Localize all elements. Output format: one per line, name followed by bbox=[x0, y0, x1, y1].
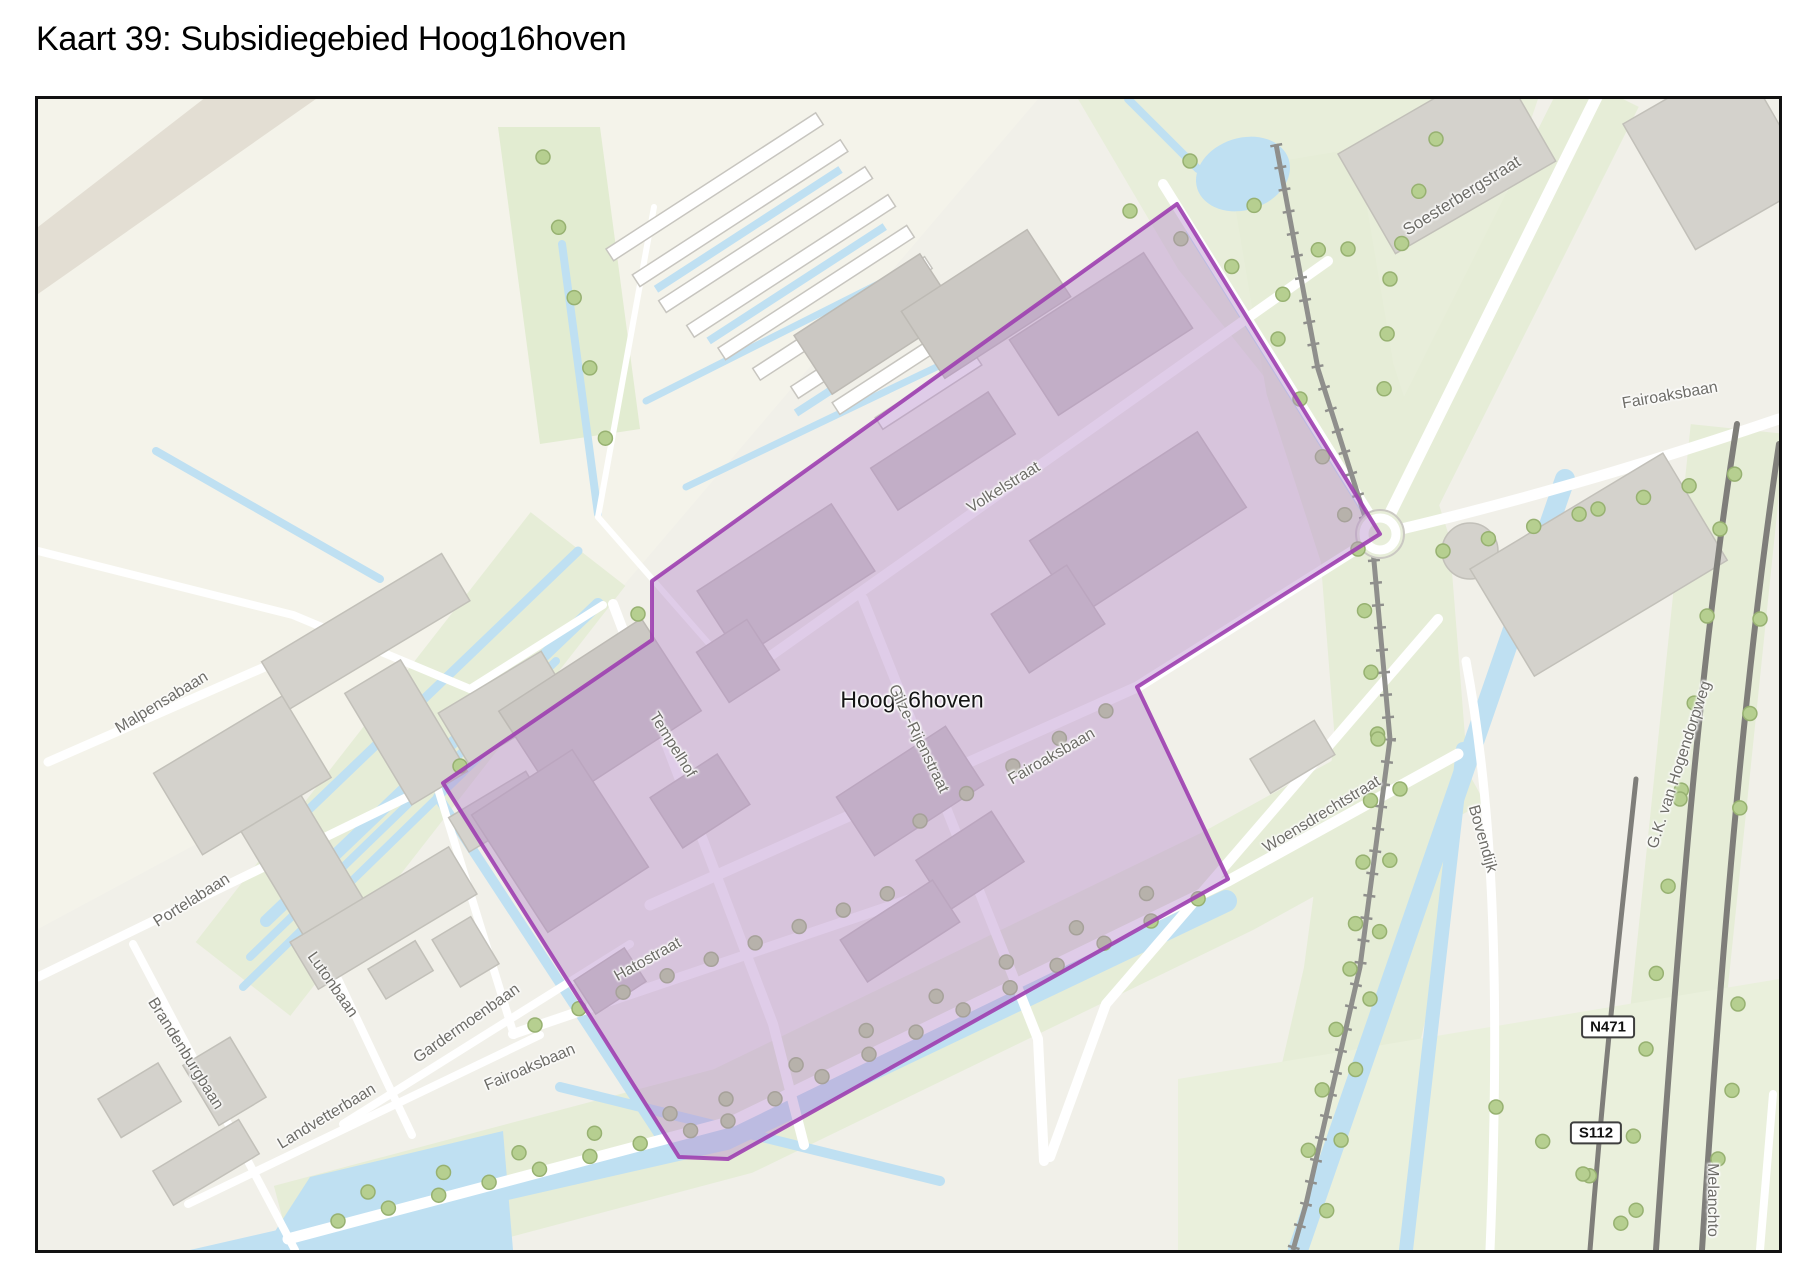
map-title: Kaart 39: Subsidiegebied Hoog16hoven bbox=[36, 20, 626, 59]
labels-layer: Hoog16hovenSoesterbergstraatFairoaksbaan… bbox=[38, 99, 1779, 1250]
street-label: Soesterbergstraat bbox=[1399, 152, 1524, 241]
street-label: Gardermoenbaan bbox=[410, 981, 523, 1068]
map-frame: Hoog16hovenSoesterbergstraatFairoaksbaan… bbox=[35, 96, 1782, 1253]
street-label: Bovendijk bbox=[1464, 803, 1500, 875]
road-shield: N471 bbox=[1581, 1015, 1635, 1038]
street-label: Landvetterbaan bbox=[275, 1081, 380, 1154]
street-label: Tempelhof bbox=[645, 709, 699, 781]
street-label: G.K. van Hogendorpweg bbox=[1644, 679, 1715, 851]
page: Kaart 39: Subsidiegebied Hoog16hoven bbox=[0, 0, 1805, 1276]
street-label: Fairoaksbaan bbox=[482, 1041, 578, 1095]
street-label: Melanchto bbox=[1703, 1163, 1721, 1237]
road-shield: S112 bbox=[1570, 1121, 1622, 1144]
street-label: Malpensabaan bbox=[112, 668, 211, 737]
street-label: Volkelstraat bbox=[964, 458, 1044, 517]
street-label: Portelabaan bbox=[151, 871, 234, 932]
street-label: Fairoaksbaan bbox=[1006, 725, 1099, 789]
street-label: Lutonbaan bbox=[303, 949, 361, 1021]
street-label: Hatostraat bbox=[611, 934, 684, 986]
street-label: Woensdrechtstraat bbox=[1260, 773, 1384, 857]
street-label: Brandenburgbaan bbox=[143, 995, 226, 1113]
street-label: Fairoaksbaan bbox=[1621, 379, 1720, 414]
